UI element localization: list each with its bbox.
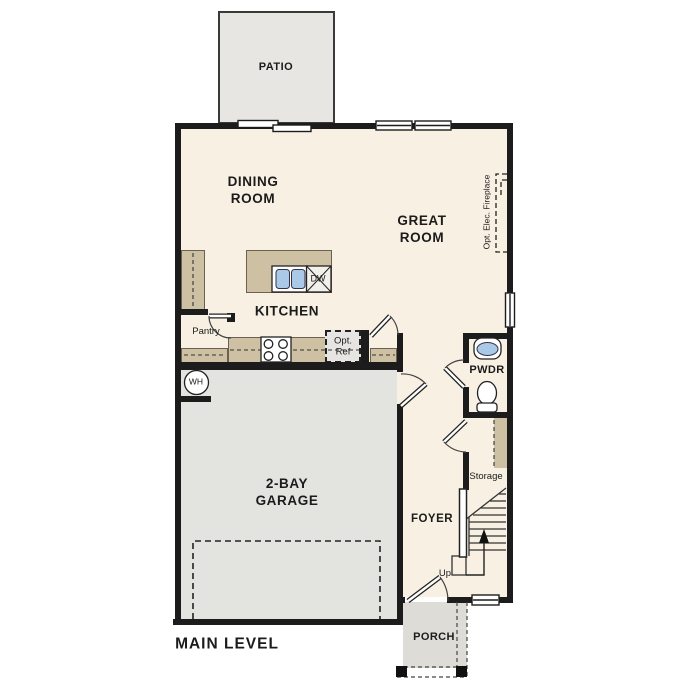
great-room-window-icons <box>376 121 451 130</box>
water-heater-label: WH <box>189 377 203 388</box>
optional-refrigerator-label: Opt. Ref <box>334 336 352 359</box>
pwdr-sink-icon <box>474 338 501 359</box>
front-door-icon <box>408 577 448 601</box>
garage-door-dashed-icon <box>193 541 380 619</box>
main-level-label: MAIN LEVEL <box>175 634 279 653</box>
porch-posts <box>396 666 467 677</box>
porch-window-icon <box>472 595 499 605</box>
island-sink-icon <box>272 266 307 292</box>
stairs-up-label: Up <box>439 568 451 580</box>
pwdr-door-icon <box>445 360 464 387</box>
patio-label: PATIO <box>259 61 293 75</box>
kitchen-label: KITCHEN <box>255 304 319 321</box>
floor-plan: PATIO DINING ROOM GREAT ROOM KITCHEN Pan… <box>0 0 687 687</box>
storage-door-icon <box>444 421 466 452</box>
stair-railing <box>460 489 467 557</box>
counter-dash-lines <box>184 253 494 466</box>
fireplace-outline-icon <box>496 174 507 252</box>
pwdr-label: PWDR <box>469 364 504 378</box>
pantry-label: Pantry <box>192 326 219 338</box>
kitchen-door-icon <box>371 316 398 336</box>
great-room-label: GREAT ROOM <box>397 213 446 247</box>
garage-label: 2-BAY GARAGE <box>256 476 319 510</box>
dining-room-label: DINING ROOM <box>228 174 279 208</box>
fireplace-label: Opt. Elec. Fireplace <box>482 175 493 250</box>
garage-entry-door-icon <box>401 374 426 406</box>
right-wall-window-icon <box>506 293 515 327</box>
foyer-label: FOYER <box>411 512 453 526</box>
stove-icon <box>261 337 291 362</box>
dishwasher-label: DW <box>311 273 326 284</box>
porch-label: PORCH <box>413 631 455 645</box>
toilet-icon <box>477 382 497 413</box>
patio-slider-door-icon <box>238 121 311 132</box>
storage-label: Storage <box>469 471 502 483</box>
